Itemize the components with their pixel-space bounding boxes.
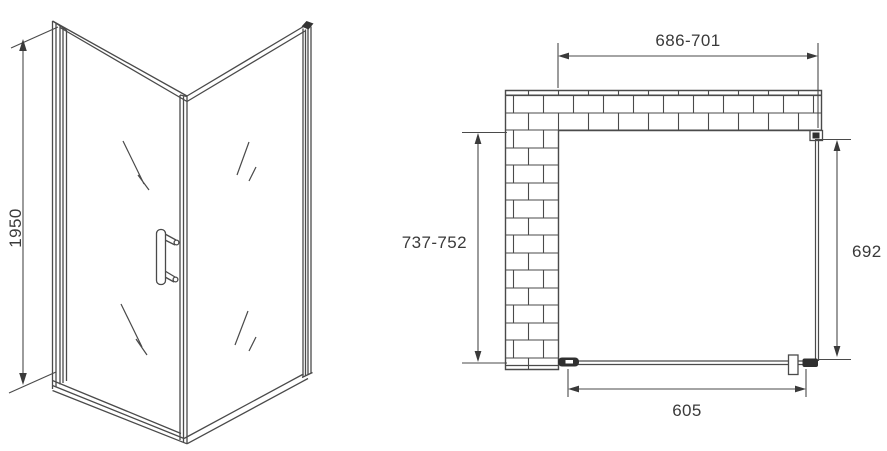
arrowhead-left-icon <box>568 386 579 393</box>
left-depth-dimension <box>462 133 507 364</box>
corner-joint <box>803 359 819 368</box>
door-width-dimension <box>568 369 806 397</box>
corner-post <box>180 95 187 444</box>
right-depth-dimension <box>815 140 851 360</box>
arrowhead-up-icon <box>834 140 841 151</box>
dimension-label-height: 1950 <box>6 197 26 259</box>
brick-wall <box>506 91 822 370</box>
door-handle <box>157 230 179 285</box>
handle-plan <box>789 355 799 375</box>
door-top-rail <box>53 21 188 102</box>
technical-drawing: 1950 686-701 737-752 692 605 <box>0 0 887 451</box>
dimension-label-right-depth: 692 <box>852 242 882 262</box>
dimension-label-top-width: 686-701 <box>613 31 763 51</box>
arrowhead-left-icon <box>558 53 569 60</box>
dimension-label-door-width: 605 <box>637 401 737 421</box>
side-panel-bottom-rail <box>184 374 308 444</box>
door-plan <box>558 355 818 375</box>
plan-view <box>462 43 851 397</box>
side-panel-plan <box>810 131 823 362</box>
drawing-canvas <box>0 0 887 451</box>
dimension-label-left-depth: 737-752 <box>385 233 467 253</box>
arrowhead-down-icon <box>834 346 841 357</box>
arrowhead-right-icon <box>807 53 818 60</box>
profile-cap <box>302 21 314 30</box>
door-bottom-rail <box>53 381 188 444</box>
side-panel-top-rail <box>187 27 305 102</box>
glass-shine-marks <box>121 141 256 355</box>
door-hinge-profile <box>53 21 67 389</box>
arrowhead-down-icon <box>19 373 27 385</box>
side-panel-wall-profile <box>302 21 314 378</box>
arrowhead-up-icon <box>19 39 27 51</box>
arrowhead-down-icon <box>475 351 482 362</box>
arrowhead-up-icon <box>475 133 482 144</box>
arrowhead-right-icon <box>795 386 806 393</box>
perspective-view <box>9 21 314 444</box>
